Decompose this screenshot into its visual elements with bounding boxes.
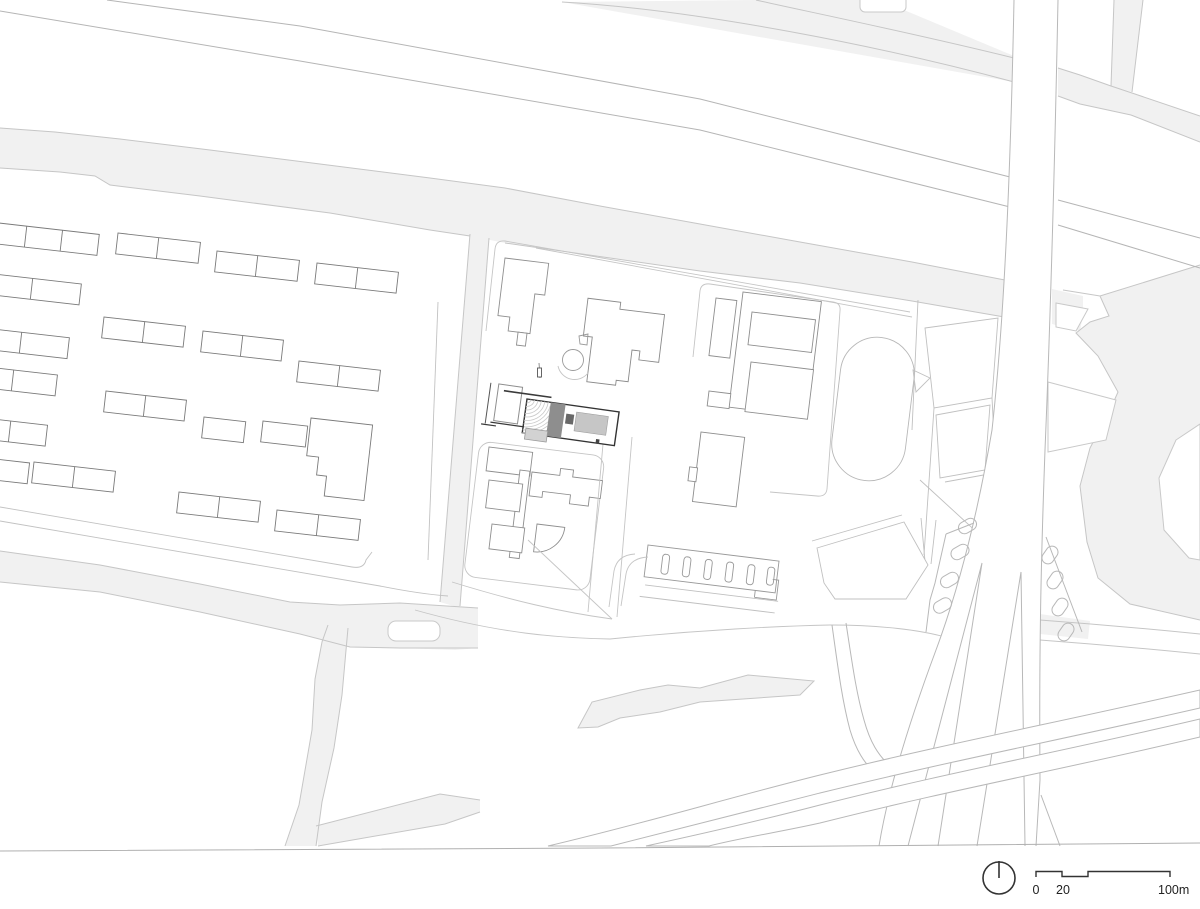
svg-text:100m: 100m [1158, 883, 1189, 897]
svg-text:0: 0 [1033, 883, 1040, 897]
svg-text:20: 20 [1056, 883, 1070, 897]
